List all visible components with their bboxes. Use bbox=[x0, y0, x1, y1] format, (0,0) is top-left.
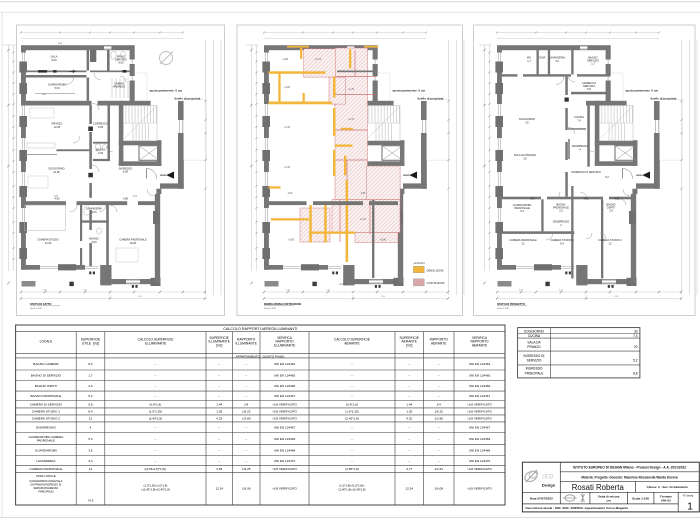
svg-text:CAMERA/STUDIO: CAMERA/STUDIO bbox=[37, 238, 59, 242]
svg-text:Scala 1:100: Scala 1:100 bbox=[264, 308, 276, 310]
svg-text:GUARDAROBA: GUARDAROBA bbox=[48, 83, 67, 87]
svg-text:(2,65*1,8): (2,65*1,8) bbox=[345, 467, 358, 471]
svg-text:74,5: 74,5 bbox=[88, 499, 94, 503]
svg-text:–: – bbox=[408, 362, 410, 366]
svg-text:livello di proprietà: livello di proprietà bbox=[651, 97, 677, 101]
svg-text:UNI EN 124467: UNI EN 124467 bbox=[274, 425, 296, 429]
svg-text:20: 20 bbox=[634, 345, 638, 349]
svg-text:3,00: 3,00 bbox=[91, 210, 97, 214]
svg-text:8,4: 8,4 bbox=[88, 410, 93, 414]
svg-text:Data 07/07/2022: Data 07/07/2022 bbox=[530, 497, 553, 501]
svg-text:(0,8*1,8): (0,8*1,8) bbox=[150, 402, 162, 406]
svg-text:–: – bbox=[155, 373, 157, 377]
svg-text:–: – bbox=[218, 384, 220, 388]
svg-text:+4,30: +4,30 bbox=[284, 126, 291, 129]
svg-text:PRANZO: PRANZO bbox=[52, 122, 63, 126]
svg-text:2,9: 2,9 bbox=[88, 384, 93, 388]
svg-text:cm: cm bbox=[606, 498, 611, 502]
svg-text:SALA DA PRANZO: SALA DA PRANZO bbox=[514, 153, 536, 157]
svg-text:+4,30: +4,30 bbox=[284, 166, 291, 169]
svg-text:–: – bbox=[351, 459, 353, 463]
svg-text:–: – bbox=[218, 437, 220, 441]
svg-text:UNI EN 124464: UNI EN 124464 bbox=[469, 362, 491, 366]
svg-text:–: – bbox=[245, 425, 247, 429]
svg-text:+0,70: +0,70 bbox=[315, 58, 322, 61]
svg-text:>1/8 VERIFICATO: >1/8 VERIFICATO bbox=[467, 417, 492, 421]
svg-text:–: – bbox=[245, 448, 247, 452]
svg-text:quota pavimento: 0 cm: quota pavimento: 0 cm bbox=[150, 88, 183, 92]
svg-text:–: – bbox=[218, 459, 220, 463]
svg-text:3,4: 3,4 bbox=[555, 59, 559, 63]
svg-text:3,4: 3,4 bbox=[88, 459, 93, 463]
svg-text:APPARTAMENTO - QUINTO PIANO: APPARTAMENTO - QUINTO PIANO bbox=[236, 354, 285, 358]
svg-text:(2,40*1,8): (2,40*1,8) bbox=[345, 417, 358, 421]
svg-text:33: 33 bbox=[634, 330, 638, 334]
svg-text:UNI EN 124469: UNI EN 124469 bbox=[469, 437, 491, 441]
svg-text:–: – bbox=[438, 459, 440, 463]
svg-text:1/4: 1/4 bbox=[244, 402, 249, 406]
svg-text:CALCOLO RAPPORTI AEREOILLUMINA: CALCOLO RAPPORTI AEREOILLUMINANTI bbox=[223, 327, 297, 331]
svg-text:STATO DI FATTO: STATO DI FATTO bbox=[30, 302, 51, 306]
svg-text:PRINCIPALE: PRINCIPALE bbox=[525, 371, 544, 375]
svg-text:–: – bbox=[408, 394, 410, 398]
svg-text:>1/8 VERIFICATO: >1/8 VERIFICATO bbox=[272, 402, 297, 406]
svg-text:7,4: 7,4 bbox=[577, 119, 581, 123]
svg-text:4,80: 4,80 bbox=[123, 196, 129, 200]
svg-text:1/6,08: 1/6,08 bbox=[242, 487, 251, 491]
svg-text:1/6,22: 1/6,22 bbox=[435, 410, 444, 414]
svg-text:Scala 1:100: Scala 1:100 bbox=[497, 308, 509, 310]
svg-text:–: – bbox=[155, 362, 157, 366]
svg-text:5,2: 5,2 bbox=[88, 394, 93, 398]
svg-text:4,32: 4,32 bbox=[216, 417, 222, 421]
svg-text:+2,70: +2,70 bbox=[348, 88, 355, 91]
svg-text:4,95: 4,95 bbox=[583, 197, 589, 201]
svg-text:–: – bbox=[245, 437, 247, 441]
svg-text:5,00: 5,00 bbox=[54, 86, 60, 90]
svg-text:1/6,08: 1/6,08 bbox=[435, 487, 444, 491]
svg-text:BAGNO PADRONALE: BAGNO PADRONALE bbox=[30, 394, 61, 398]
svg-text:–: – bbox=[438, 384, 440, 388]
svg-text:ARMADIO: ARMADIO bbox=[113, 85, 125, 89]
svg-text:–: – bbox=[218, 448, 220, 452]
svg-text:CAMERA PADRONALE: CAMERA PADRONALE bbox=[509, 238, 537, 242]
svg-text:4,77: 4,77 bbox=[406, 467, 412, 471]
svg-text:1,7: 1,7 bbox=[527, 59, 531, 63]
svg-text:ILLUMINANTE: ILLUMINANTE bbox=[274, 343, 296, 347]
svg-text:BAGNO OSPITI: BAGNO OSPITI bbox=[35, 384, 57, 388]
svg-text:–: – bbox=[155, 425, 157, 429]
svg-text:AERANTE: AERANTE bbox=[431, 342, 447, 346]
svg-text:Design: Design bbox=[542, 483, 556, 488]
svg-text:–: – bbox=[245, 394, 247, 398]
svg-text:AERANTE: AERANTE bbox=[344, 342, 360, 346]
svg-text:12,24: 12,24 bbox=[215, 487, 223, 491]
svg-text:PRANZO: PRANZO bbox=[527, 345, 541, 349]
svg-text:Scala 1:100: Scala 1:100 bbox=[632, 497, 649, 501]
svg-text:(2,40*1,8)+(2,40*1,8): (2,40*1,8)+(2,40*1,8) bbox=[338, 488, 365, 492]
svg-text:21,00: 21,00 bbox=[53, 170, 60, 174]
svg-text:–: – bbox=[408, 373, 410, 377]
svg-text:3,69: 3,69 bbox=[216, 467, 222, 471]
svg-text:UNI EN 124469: UNI EN 124469 bbox=[274, 437, 296, 441]
svg-text:COSTRUZIONI: COSTRUZIONI bbox=[427, 281, 445, 285]
svg-text:UNI EN 124470: UNI EN 124470 bbox=[469, 459, 491, 463]
svg-text:–: – bbox=[438, 448, 440, 452]
svg-text:1: 1 bbox=[687, 501, 693, 513]
svg-text:1,35: 1,35 bbox=[406, 410, 412, 414]
svg-text:+(2,40*1,8)+(2,40*1,8): +(2,40*1,8)+(2,40*1,8) bbox=[141, 488, 170, 492]
svg-text:DISP.: DISP. bbox=[539, 56, 546, 60]
svg-text:+3,80: +3,80 bbox=[284, 86, 291, 89]
svg-text:–: – bbox=[218, 394, 220, 398]
svg-text:>1/8 VERIFICATO: >1/8 VERIFICATO bbox=[272, 487, 297, 491]
svg-text:4,90: 4,90 bbox=[288, 192, 293, 195]
svg-text:–: – bbox=[245, 362, 247, 366]
svg-text:INGRESSO: INGRESSO bbox=[526, 367, 543, 371]
svg-text:→: → bbox=[76, 93, 79, 96]
svg-text:16,00: 16,00 bbox=[130, 241, 137, 245]
svg-text:UNI EN 124467: UNI EN 124467 bbox=[469, 425, 491, 429]
svg-text:1/2,80: 1/2,80 bbox=[435, 417, 444, 421]
svg-text:1,35: 1,35 bbox=[216, 410, 222, 414]
svg-text:5,8: 5,8 bbox=[88, 402, 93, 406]
svg-text:CAMERA PADRONALE: CAMERA PADRONALE bbox=[30, 467, 63, 471]
svg-text:–: – bbox=[218, 362, 220, 366]
svg-text:4: 4 bbox=[90, 425, 92, 429]
svg-text:UNI A2: UNI A2 bbox=[661, 498, 671, 502]
svg-text:quota pavimento: 0 cm: quota pavimento: 0 cm bbox=[393, 88, 426, 92]
svg-text:–: – bbox=[155, 437, 157, 441]
svg-text:–: – bbox=[218, 373, 220, 377]
svg-text:–: – bbox=[351, 384, 353, 388]
svg-text:4,85: 4,85 bbox=[614, 197, 620, 201]
svg-text:–: – bbox=[351, 394, 353, 398]
svg-text:DISIMPEGNO: DISIMPEGNO bbox=[36, 425, 56, 429]
svg-text:–: – bbox=[245, 384, 247, 388]
svg-text:UNI EN 124465: UNI EN 124465 bbox=[274, 373, 296, 377]
svg-text:–: – bbox=[245, 459, 247, 463]
svg-text:5,2: 5,2 bbox=[605, 175, 609, 179]
svg-text:SALA: SALA bbox=[51, 55, 58, 59]
svg-text:5,00: 5,00 bbox=[51, 58, 57, 62]
svg-text:1,7: 1,7 bbox=[88, 373, 93, 377]
svg-text:–: – bbox=[218, 425, 220, 429]
svg-text:Materia: Progetto- Docente: Ma: Materia: Progetto- Docente: Massimo Rocc… bbox=[581, 475, 677, 479]
svg-text:5,8: 5,8 bbox=[587, 87, 591, 91]
svg-text:CORRIDOIO: CORRIDOIO bbox=[93, 122, 108, 126]
svg-text:UNI EN 124464: UNI EN 124464 bbox=[274, 362, 296, 366]
svg-text:1/4: 1/4 bbox=[437, 402, 442, 406]
svg-text:4,00: 4,00 bbox=[98, 151, 104, 155]
svg-text:livello di proprietà: livello di proprietà bbox=[175, 97, 201, 101]
svg-text:1/6,22: 1/6,22 bbox=[242, 410, 251, 414]
svg-text:UNI EN 124466: UNI EN 124466 bbox=[469, 384, 491, 388]
svg-text:7,4: 7,4 bbox=[633, 334, 638, 338]
svg-text:DEMOLIZIONI-COSTRUZIONI: DEMOLIZIONI-COSTRUZIONI bbox=[264, 302, 301, 306]
svg-text:SOGGIORNO: SOGGIORNO bbox=[48, 167, 64, 171]
svg-text:>1/8 VERIFICATO: >1/8 VERIFICATO bbox=[272, 410, 297, 414]
svg-text:PRINCIPALE): PRINCIPALE) bbox=[38, 490, 53, 493]
svg-text:CUCINA: CUCINA bbox=[528, 334, 541, 338]
svg-text:–: – bbox=[408, 448, 410, 452]
svg-text:1,44: 1,44 bbox=[406, 402, 412, 406]
svg-text:UNI EN 124467: UNI EN 124467 bbox=[469, 394, 491, 398]
svg-text:GUARDAROBA: GUARDAROBA bbox=[35, 448, 58, 452]
svg-text:–: – bbox=[408, 425, 410, 429]
svg-text:UNI EN 124468: UNI EN 124468 bbox=[469, 448, 491, 452]
svg-text:+3,80: +3,80 bbox=[288, 239, 295, 242]
svg-text:+2,70: +2,70 bbox=[348, 118, 355, 121]
svg-text:12,24: 12,24 bbox=[405, 487, 413, 491]
svg-text:4,90: 4,90 bbox=[529, 197, 535, 201]
svg-text:INGRESSO DI SERVIZIO: INGRESSO DI SERVIZIO bbox=[571, 170, 601, 174]
svg-text:+3,80: +3,80 bbox=[282, 58, 289, 61]
svg-text:(1,0*1,35): (1,0*1,35) bbox=[149, 410, 162, 414]
svg-text:LOCALE: LOCALE bbox=[40, 340, 54, 344]
svg-text:4,32: 4,32 bbox=[406, 417, 412, 421]
svg-text:UNI EN 124468: UNI EN 124468 bbox=[274, 448, 296, 452]
svg-text:ILLUMINANTE: ILLUMINANTE bbox=[145, 342, 167, 346]
svg-text:LEGENDA: LEGENDA bbox=[413, 262, 425, 265]
svg-text:5,2: 5,2 bbox=[559, 209, 563, 213]
svg-text:UNI EN 124470: UNI EN 124470 bbox=[274, 459, 296, 463]
svg-text:CAMERA STUDIO 1: CAMERA STUDIO 1 bbox=[550, 238, 574, 242]
svg-text:INGRESSO DI: INGRESSO DI bbox=[524, 354, 545, 358]
svg-text:–: – bbox=[438, 394, 440, 398]
svg-text:12: 12 bbox=[89, 417, 93, 421]
svg-text:>1/8 VERIFICATO: >1/8 VERIFICATO bbox=[467, 410, 492, 414]
svg-text:SOGGIORNO: SOGGIORNO bbox=[519, 117, 535, 121]
svg-text:IED: IED bbox=[542, 474, 554, 480]
svg-text:N° tavola: N° tavola bbox=[683, 493, 694, 497]
svg-text:2,9: 2,9 bbox=[609, 209, 613, 213]
svg-text:1,7: 1,7 bbox=[591, 62, 595, 66]
svg-text:CAMERA STUDIO 2: CAMERA STUDIO 2 bbox=[598, 238, 622, 242]
svg-text:>1/8 VERIFICATO: >1/8 VERIFICATO bbox=[467, 467, 492, 471]
svg-text:+2,70: +2,70 bbox=[360, 218, 367, 221]
svg-text:–: – bbox=[155, 394, 157, 398]
svg-text:UNI EN 124466: UNI EN 124466 bbox=[274, 384, 296, 388]
svg-text:>1/8 VERIFICATO: >1/8 VERIFICATO bbox=[272, 467, 297, 471]
svg-text:UNI EN 124465: UNI EN 124465 bbox=[469, 373, 491, 377]
svg-text:SERVIZIO: SERVIZIO bbox=[527, 358, 542, 362]
svg-text:–: – bbox=[408, 437, 410, 441]
svg-text:SOGGIORNO: SOGGIORNO bbox=[524, 330, 545, 334]
svg-text:–: – bbox=[351, 437, 353, 441]
svg-text:–: – bbox=[351, 425, 353, 429]
svg-text:CAMERA PADRONALE: CAMERA PADRONALE bbox=[119, 238, 147, 242]
svg-text:UTILE [m2]: UTILE [m2] bbox=[82, 342, 99, 346]
svg-text:[m2]: [m2] bbox=[406, 343, 412, 347]
svg-text:5,3: 5,3 bbox=[520, 209, 524, 213]
svg-text:–: – bbox=[408, 459, 410, 463]
svg-text:–: – bbox=[438, 425, 440, 429]
svg-text:8,8: 8,8 bbox=[633, 371, 638, 375]
svg-text:–: – bbox=[408, 384, 410, 388]
svg-text:LAVANDERIA: LAVANDERIA bbox=[36, 459, 56, 463]
svg-text:–: – bbox=[351, 373, 353, 377]
svg-text:CAMERA STUDIO 2: CAMERA STUDIO 2 bbox=[32, 417, 60, 421]
svg-text:–: – bbox=[155, 384, 157, 388]
svg-text:5,2: 5,2 bbox=[633, 358, 638, 362]
svg-text:>1/8 VERIFICATO: >1/8 VERIFICATO bbox=[272, 417, 297, 421]
svg-text:BAGNO CAMERE: BAGNO CAMERE bbox=[33, 362, 58, 366]
svg-text:(2,40*1,8): (2,40*1,8) bbox=[149, 417, 162, 421]
svg-text:3,6: 3,6 bbox=[88, 448, 93, 452]
svg-text:quota pavimento: 0 cm: quota pavimento: 0 cm bbox=[626, 88, 659, 92]
svg-text:((2,65-0,6)*1,8)): ((2,65-0,6)*1,8)) bbox=[145, 467, 167, 471]
svg-text:(0,8*1,8): (0,8*1,8) bbox=[346, 402, 358, 406]
svg-text:PADRONALE: PADRONALE bbox=[37, 439, 55, 443]
svg-text:3,00: 3,00 bbox=[91, 240, 97, 244]
svg-text:OPEN SPACE: OPEN SPACE bbox=[36, 474, 56, 478]
svg-text:>1/8 VERIFICATO: >1/8 VERIFICATO bbox=[467, 487, 492, 491]
svg-text:6,00: 6,00 bbox=[123, 170, 129, 174]
svg-text:5,00: 5,00 bbox=[98, 125, 104, 129]
svg-text:CUCINA: CUCINA bbox=[574, 115, 584, 119]
svg-text:–: – bbox=[351, 448, 353, 452]
svg-text:12,00: 12,00 bbox=[45, 241, 52, 245]
svg-text:DISIMPEGNO: DISIMPEGNO bbox=[572, 144, 589, 148]
svg-text:Descrizione tavola : SDF, SDC,: Descrizione tavola : SDF, SDC, SDP/RAI. … bbox=[526, 506, 629, 510]
svg-text:–: – bbox=[438, 362, 440, 366]
svg-text:–: – bbox=[351, 362, 353, 366]
svg-text:UNI EN 124467: UNI EN 124467 bbox=[274, 394, 296, 398]
svg-text:+0,00: +0,00 bbox=[339, 283, 346, 286]
svg-text:8,3: 8,3 bbox=[88, 362, 93, 366]
svg-text:[m2]: [m2] bbox=[216, 343, 222, 347]
svg-text:ILLUMINANTE: ILLUMINANTE bbox=[235, 342, 257, 346]
svg-text:1/3,25: 1/3,25 bbox=[242, 467, 251, 471]
svg-text:ISTITUTO EUROPEO DI DESIGN Mil: ISTITUTO EUROPEO DI DESIGN Milano - Prod… bbox=[573, 466, 686, 470]
svg-text:–: – bbox=[438, 373, 440, 377]
svg-text:1,44: 1,44 bbox=[216, 402, 222, 406]
svg-text:12,00: 12,00 bbox=[54, 125, 61, 129]
svg-text:>1/8 VERIFICATO: >1/8 VERIFICATO bbox=[467, 402, 492, 406]
svg-text:Rosati Roberta: Rosati Roberta bbox=[572, 483, 625, 492]
svg-text:–: – bbox=[438, 437, 440, 441]
svg-text:–: – bbox=[155, 448, 157, 452]
svg-text:6,00: 6,00 bbox=[118, 60, 124, 64]
svg-text:4,95: 4,95 bbox=[361, 192, 366, 195]
svg-text:SALA DA: SALA DA bbox=[527, 341, 541, 345]
svg-text:livello di proprietà: livello di proprietà bbox=[418, 97, 444, 101]
svg-text:+3,80: +3,80 bbox=[380, 239, 387, 242]
svg-text:AERANTE: AERANTE bbox=[472, 343, 488, 347]
svg-text:1/2,80: 1/2,80 bbox=[242, 417, 251, 421]
svg-text:5,3: 5,3 bbox=[88, 437, 93, 441]
svg-text:Scala 1:100: Scala 1:100 bbox=[30, 308, 42, 310]
svg-text:(1,0*1,35): (1,0*1,35) bbox=[345, 410, 358, 414]
svg-text:1/2,51: 1/2,51 bbox=[435, 467, 444, 471]
svg-text:8,4: 8,4 bbox=[560, 241, 564, 245]
svg-text:CAMERA DI SERVIZIO: CAMERA DI SERVIZIO bbox=[30, 402, 63, 406]
svg-text:BAGNO DI SERVIZIO: BAGNO DI SERVIZIO bbox=[31, 373, 62, 377]
svg-text:–: – bbox=[155, 459, 157, 463]
svg-text:DEMOLIZIONI: DEMOLIZIONI bbox=[427, 268, 444, 272]
svg-text:12: 12 bbox=[89, 467, 93, 471]
svg-text:STATO DI PROGETTO: STATO DI PROGETTO bbox=[497, 302, 525, 306]
svg-text:Classe: 2 - Sez: Arredamento: Classe: 2 - Sez: Arredamento bbox=[647, 485, 689, 489]
svg-text:–: – bbox=[245, 373, 247, 377]
svg-text:CAMERA STUDIO 1: CAMERA STUDIO 1 bbox=[32, 410, 60, 414]
